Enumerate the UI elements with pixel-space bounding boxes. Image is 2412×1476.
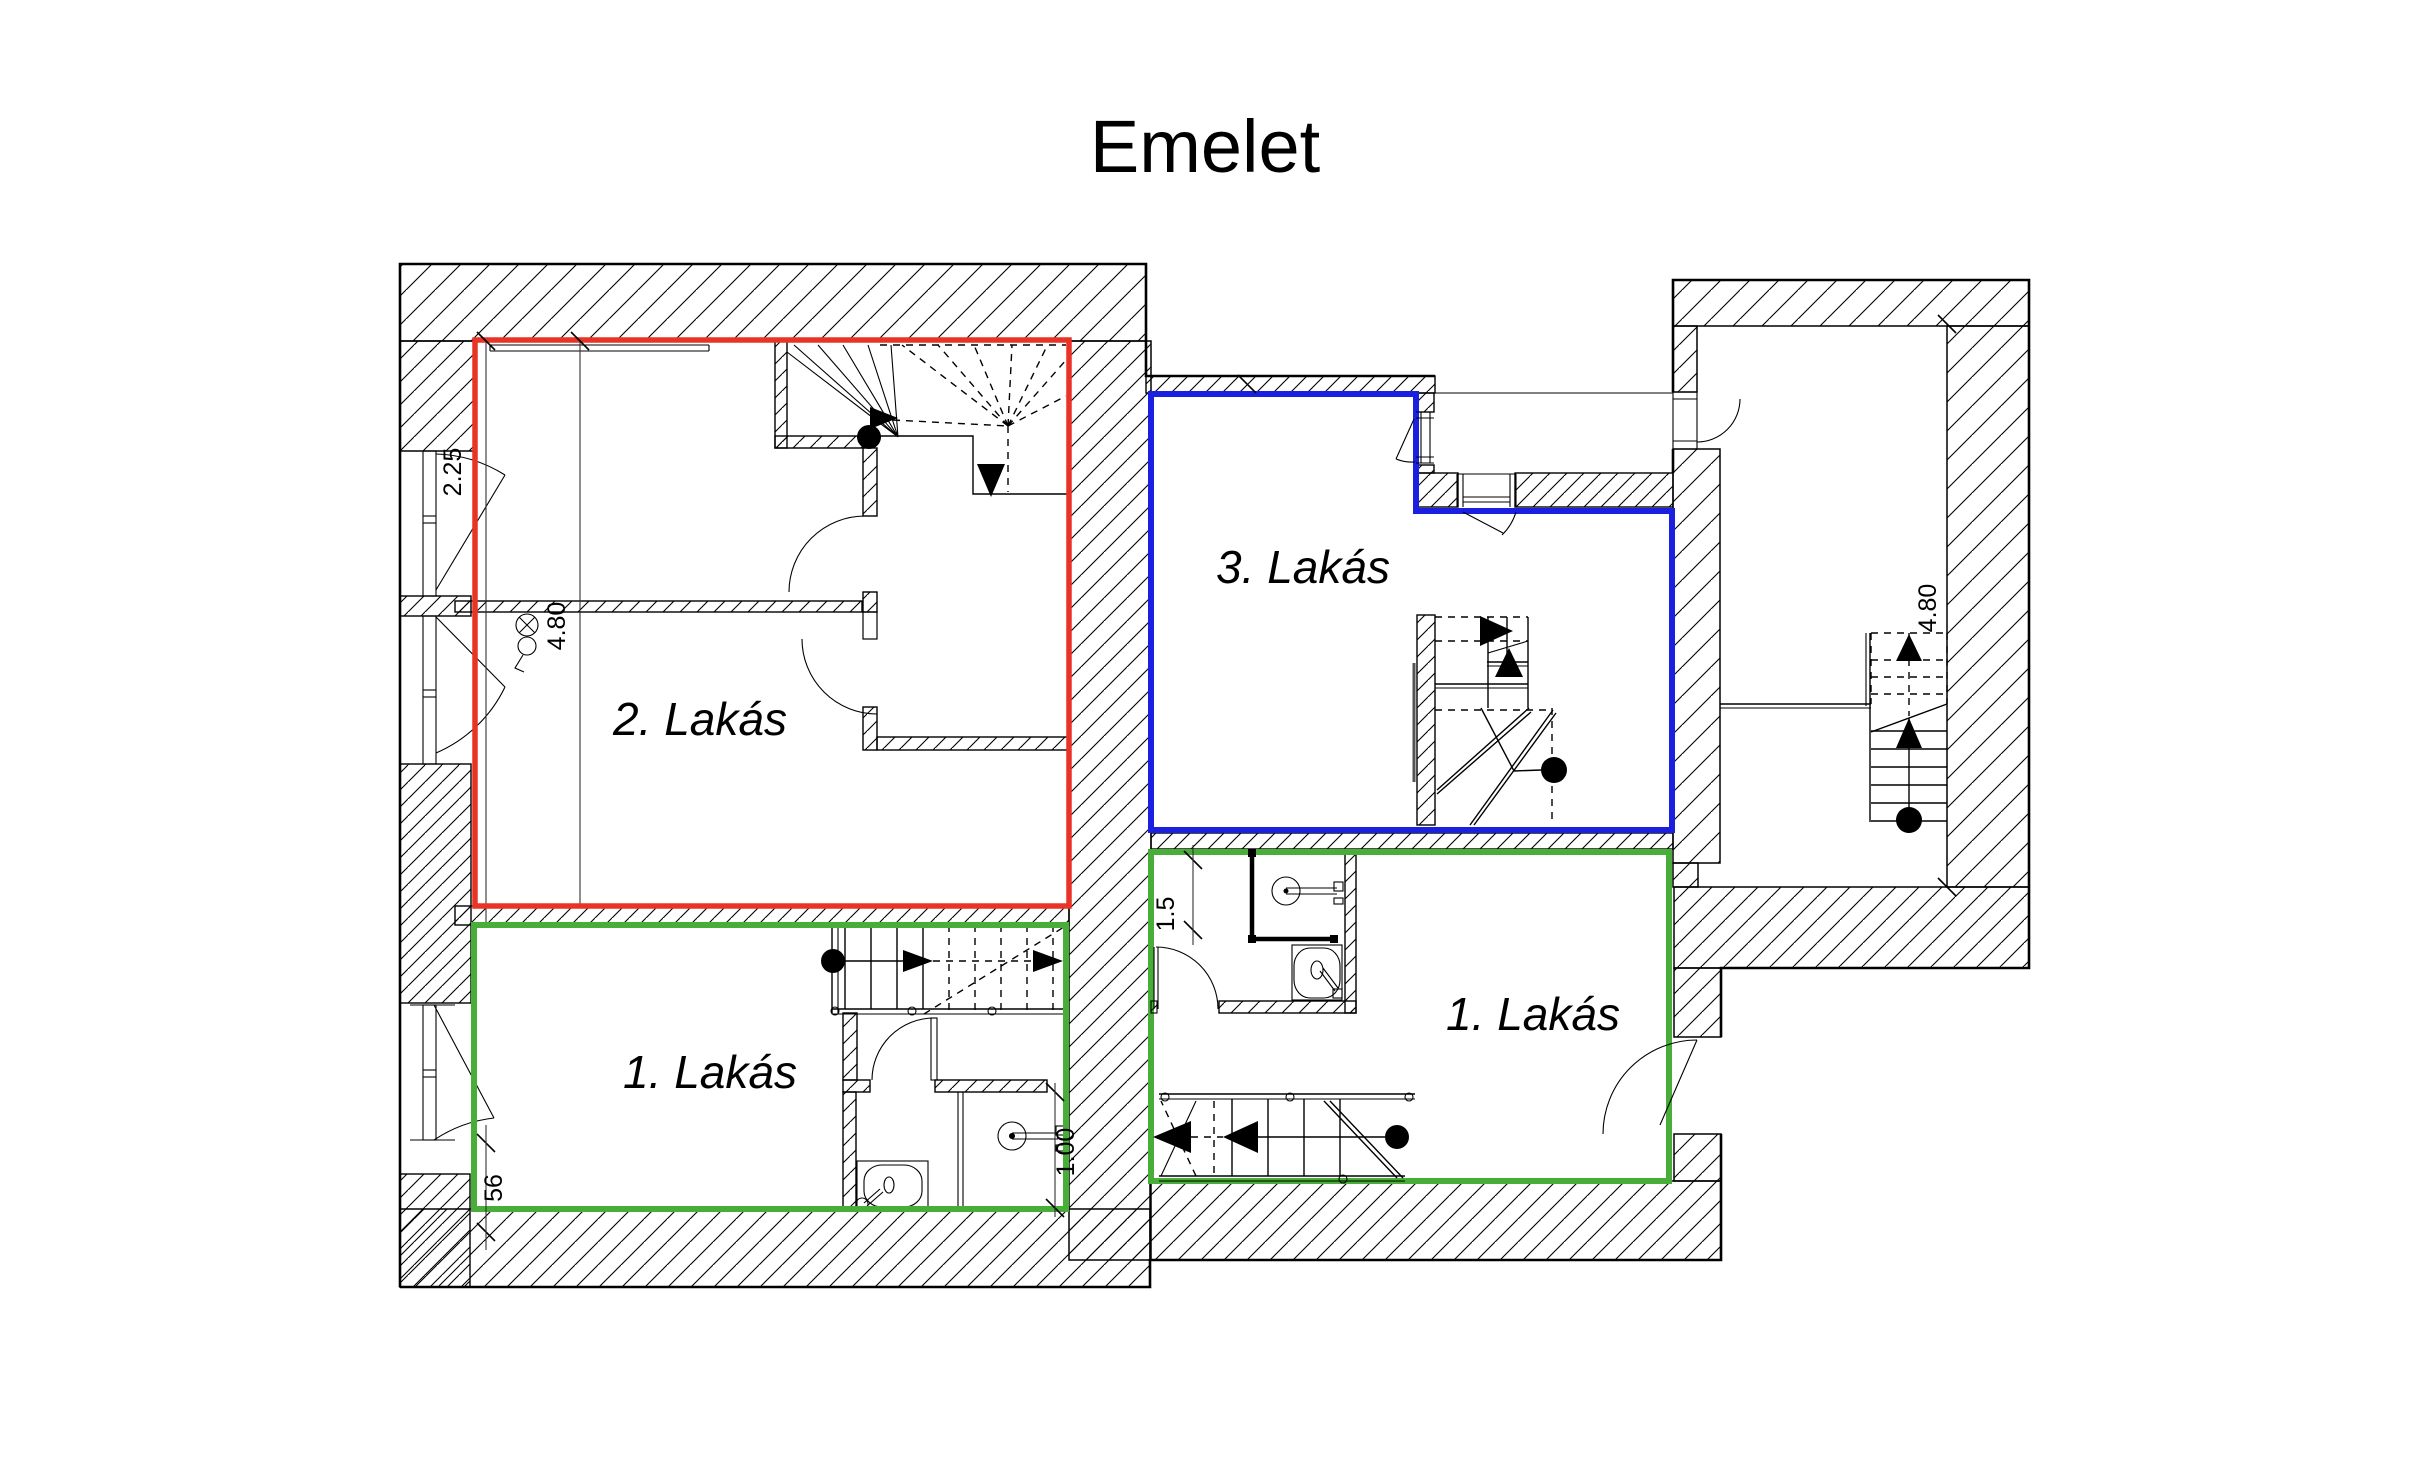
- svg-text:2. Lakás: 2. Lakás: [612, 693, 787, 745]
- svg-text:1.00: 1.00: [1052, 1128, 1080, 1177]
- svg-text:2.25: 2.25: [439, 448, 467, 497]
- svg-text:Emelet: Emelet: [1090, 105, 1321, 188]
- svg-text:1. Lakás: 1. Lakás: [1446, 988, 1620, 1040]
- svg-text:56: 56: [480, 1174, 508, 1202]
- svg-text:4.80: 4.80: [543, 602, 571, 651]
- svg-text:3. Lakás: 3. Lakás: [1216, 541, 1390, 593]
- svg-text:4.80: 4.80: [1914, 584, 1942, 633]
- svg-text:1.5: 1.5: [1152, 897, 1180, 932]
- svg-text:1. Lakás: 1. Lakás: [623, 1046, 797, 1098]
